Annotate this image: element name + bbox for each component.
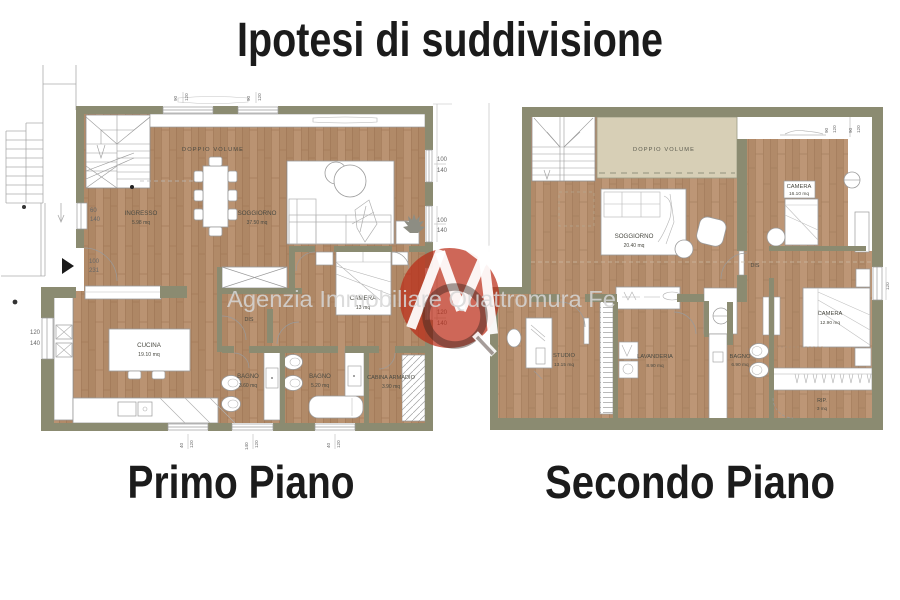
svg-text:37.50 mq: 37.50 mq: [247, 220, 268, 226]
svg-text:RIP.: RIP.: [817, 398, 827, 404]
svg-text:100: 100: [437, 157, 448, 163]
svg-text:120: 120: [257, 93, 262, 101]
svg-text:120: 120: [30, 330, 41, 336]
svg-text:120: 120: [856, 125, 861, 133]
svg-text:16.10 mq: 16.10 mq: [789, 191, 809, 197]
svg-text:5.98 mq: 5.98 mq: [132, 220, 150, 226]
svg-text:140: 140: [90, 217, 101, 223]
svg-text:20.40 mq: 20.40 mq: [624, 243, 645, 249]
svg-text:140: 140: [244, 442, 249, 450]
svg-text:120: 120: [336, 440, 341, 448]
svg-text:140: 140: [30, 341, 41, 347]
svg-text:Agenzia Immobiliare Quattromur: Agenzia Immobiliare Quattromura Fe: [227, 286, 616, 312]
svg-text:40: 40: [179, 442, 184, 448]
svg-text:5.20 mq: 5.20 mq: [311, 383, 329, 389]
svg-text:BAGNO: BAGNO: [237, 374, 259, 380]
svg-text:DIS: DIS: [245, 317, 254, 323]
svg-text:100: 100: [437, 218, 448, 224]
svg-text:INGRESSO: INGRESSO: [125, 210, 158, 217]
svg-text:60: 60: [90, 208, 97, 214]
svg-text:SOGGIORNO: SOGGIORNO: [615, 233, 654, 240]
svg-text:3 mq: 3 mq: [817, 406, 828, 411]
svg-text:Ipotesi di suddivisione: Ipotesi di suddivisione: [237, 14, 663, 67]
svg-text:CAMERA: CAMERA: [818, 311, 843, 317]
svg-text:90: 90: [848, 127, 853, 133]
svg-text:Primo Piano: Primo Piano: [128, 456, 355, 508]
svg-text:12.90 mq: 12.90 mq: [820, 320, 840, 326]
svg-text:3.90 mq: 3.90 mq: [382, 384, 400, 390]
svg-text:90: 90: [246, 95, 251, 101]
svg-text:8.90 mq: 8.90 mq: [646, 363, 664, 369]
svg-text:CUCINA: CUCINA: [137, 342, 162, 349]
svg-text:13.15 mq: 13.15 mq: [554, 362, 574, 368]
svg-text:BAGNO: BAGNO: [730, 354, 751, 360]
svg-text:BAGNO: BAGNO: [309, 374, 331, 380]
svg-text:90: 90: [824, 127, 829, 133]
svg-text:120: 120: [832, 125, 837, 133]
svg-text:100: 100: [89, 259, 100, 265]
svg-text:140: 140: [437, 228, 448, 234]
svg-text:DOPPIO VOLUME: DOPPIO VOLUME: [633, 147, 695, 153]
svg-text:LAVANDERIA: LAVANDERIA: [637, 354, 673, 360]
svg-text:CABINA ARMADIO: CABINA ARMADIO: [367, 375, 416, 381]
svg-text:CAMERA: CAMERA: [787, 184, 812, 190]
svg-text:6.90 mq: 6.90 mq: [731, 362, 749, 368]
svg-text:STUDIO: STUDIO: [553, 353, 575, 359]
svg-text:DIS: DIS: [751, 263, 760, 269]
svg-text:231: 231: [89, 268, 100, 274]
svg-text:SOGGIORNO: SOGGIORNO: [238, 210, 277, 217]
svg-text:120: 120: [254, 440, 259, 448]
svg-text:19.10 mq: 19.10 mq: [138, 352, 160, 358]
svg-text:140: 140: [437, 168, 448, 174]
svg-text:DOPPIO VOLUME: DOPPIO VOLUME: [182, 147, 244, 153]
svg-text:90: 90: [173, 95, 178, 101]
svg-text:120: 120: [189, 440, 194, 448]
svg-text:40: 40: [326, 442, 331, 448]
svg-text:Secondo Piano: Secondo Piano: [545, 456, 835, 508]
svg-text:3.60 mq: 3.60 mq: [239, 383, 257, 389]
svg-text:120: 120: [184, 93, 189, 101]
